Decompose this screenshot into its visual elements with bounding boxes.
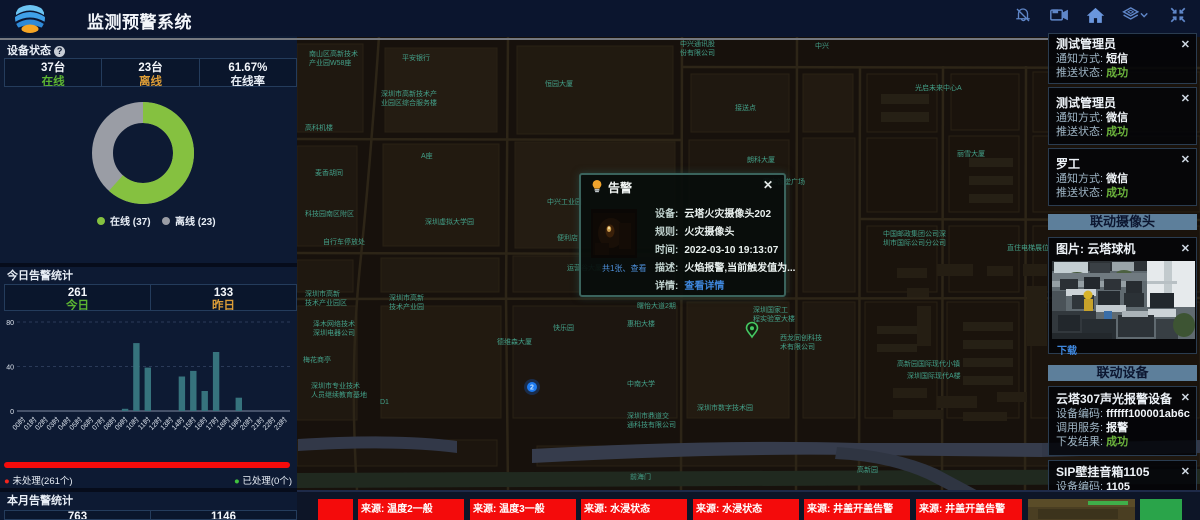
- svg-text:深圳电器公司: 深圳电器公司: [313, 328, 355, 337]
- svg-text:0: 0: [10, 409, 14, 416]
- svg-text:深圳虚拟大学园: 深圳虚拟大学园: [425, 217, 474, 226]
- svg-text:中兴: 中兴: [815, 41, 829, 50]
- svg-text:朗科大厦: 朗科大厦: [747, 155, 775, 164]
- svg-text:恒园大厦: 恒园大厦: [545, 79, 573, 88]
- svg-text:高科机楼: 高科机楼: [305, 123, 333, 132]
- svg-text:惠桕大楼: 惠桕大楼: [627, 319, 655, 328]
- svg-text:业园区综合服务楼: 业园区综合服务楼: [381, 98, 437, 107]
- svg-text:40: 40: [6, 365, 14, 372]
- svg-text:深圳市鼎道交: 深圳市鼎道交: [627, 411, 669, 420]
- svg-text:西龙同创科技: 西龙同创科技: [780, 333, 822, 342]
- svg-text:自行车停放处: 自行车停放处: [323, 237, 365, 246]
- svg-text:中南大学: 中南大学: [627, 379, 655, 388]
- svg-text:技术产业园区: 技术产业园区: [305, 298, 347, 307]
- svg-text:80: 80: [6, 320, 14, 327]
- svg-text:德维森大厦: 德维森大厦: [497, 337, 532, 346]
- svg-text:深圳市高新: 深圳市高新: [305, 289, 340, 298]
- svg-text:便利店: 便利店: [557, 233, 578, 242]
- svg-text:深圳市高新技术产: 深圳市高新技术产: [381, 89, 437, 98]
- svg-text:丽雪大厦: 丽雪大厦: [957, 149, 985, 158]
- svg-text:中国邮政集团公司深: 中国邮政集团公司深: [883, 229, 946, 238]
- svg-text:2: 2: [530, 385, 534, 392]
- svg-text:南山区高新技术: 南山区高新技术: [309, 49, 358, 58]
- svg-text:高新园: 高新园: [857, 465, 878, 474]
- svg-text:份有限公司: 份有限公司: [680, 48, 715, 57]
- svg-text:术有限公司: 术有限公司: [780, 342, 815, 351]
- svg-text:梅花商亭: 梅花商亭: [303, 355, 331, 364]
- svg-text:曙怡大道2期: 曙怡大道2期: [637, 301, 676, 310]
- svg-text:D1: D1: [380, 399, 389, 406]
- svg-text:在线 (37): 在线 (37): [110, 215, 151, 228]
- svg-text:中兴工业园: 中兴工业园: [547, 197, 582, 206]
- svg-text:深圳国家工: 深圳国家工: [753, 305, 788, 314]
- svg-text:离线 (23): 离线 (23): [175, 215, 216, 228]
- svg-text:圳市国际公司分公司: 圳市国际公司分公司: [883, 238, 946, 247]
- svg-text:直住电梯展位: 直住电梯展位: [1007, 243, 1049, 252]
- svg-text:麦香胡同: 麦香胡同: [315, 168, 343, 177]
- svg-text:技术产业园: 技术产业园: [389, 302, 424, 311]
- svg-text:深圳国际现代A楼: 深圳国际现代A楼: [907, 371, 961, 380]
- svg-text:人员继续教育基地: 人员继续教育基地: [311, 390, 367, 399]
- svg-text:科技园南区附区: 科技园南区附区: [305, 209, 354, 218]
- svg-text:快乐园: 快乐园: [553, 323, 574, 332]
- svg-text:光启未来中心A: 光启未来中心A: [915, 83, 962, 92]
- svg-text:前海门: 前海门: [630, 472, 651, 481]
- svg-text:高新园国际现代小镇: 高新园国际现代小镇: [897, 359, 960, 368]
- svg-text:中兴通讯股: 中兴通讯股: [680, 39, 715, 48]
- svg-text:通科技有限公司: 通科技有限公司: [627, 420, 676, 429]
- svg-text:深圳市数字技术园: 深圳市数字技术园: [697, 403, 753, 412]
- svg-text:平安银行: 平安银行: [402, 53, 430, 62]
- svg-text:产业园W58座: 产业园W58座: [309, 58, 351, 67]
- svg-text:程实验室大楼: 程实验室大楼: [753, 314, 795, 323]
- svg-text:泽木网络技术: 泽木网络技术: [313, 319, 355, 328]
- svg-text:A座: A座: [421, 151, 433, 160]
- svg-text:深圳市专业技术: 深圳市专业技术: [311, 381, 360, 390]
- svg-text:接送点: 接送点: [735, 103, 756, 112]
- svg-text:深圳市高新: 深圳市高新: [389, 293, 424, 302]
